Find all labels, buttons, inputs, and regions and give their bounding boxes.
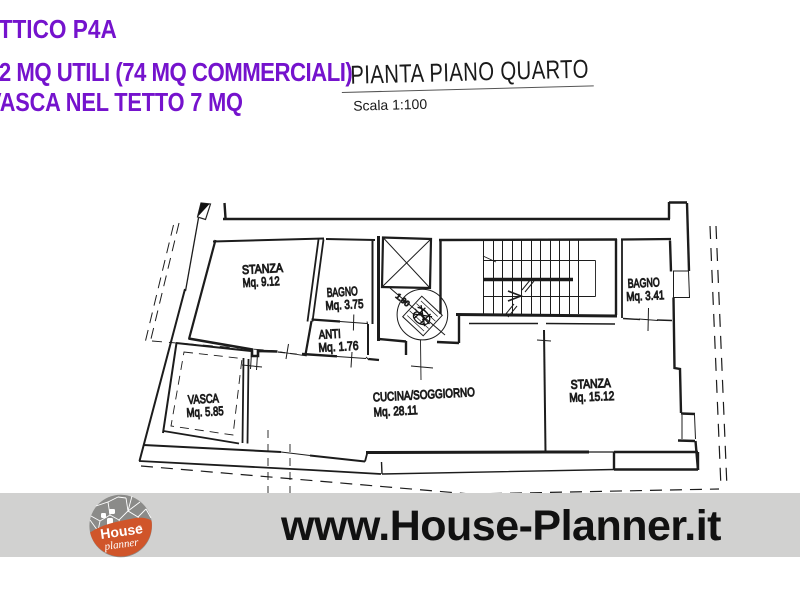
svg-text:Mq. 15.12: Mq. 15.12 [569, 389, 615, 405]
svg-text:Mq. 3.75: Mq. 3.75 [325, 297, 364, 313]
svg-text:Mq. 1.76: Mq. 1.76 [318, 339, 359, 355]
svg-text:Mq. 3.41: Mq. 3.41 [626, 288, 665, 304]
svg-text:Mq. 28.11: Mq. 28.11 [373, 403, 418, 419]
svg-text:Mq. 9.12: Mq. 9.12 [242, 274, 280, 290]
svg-text:CUCINA/SOGGIORNO: CUCINA/SOGGIORNO [373, 385, 476, 404]
svg-text:Mq. 5.85: Mq. 5.85 [186, 404, 224, 420]
svg-text:1.90: 1.90 [394, 292, 412, 309]
